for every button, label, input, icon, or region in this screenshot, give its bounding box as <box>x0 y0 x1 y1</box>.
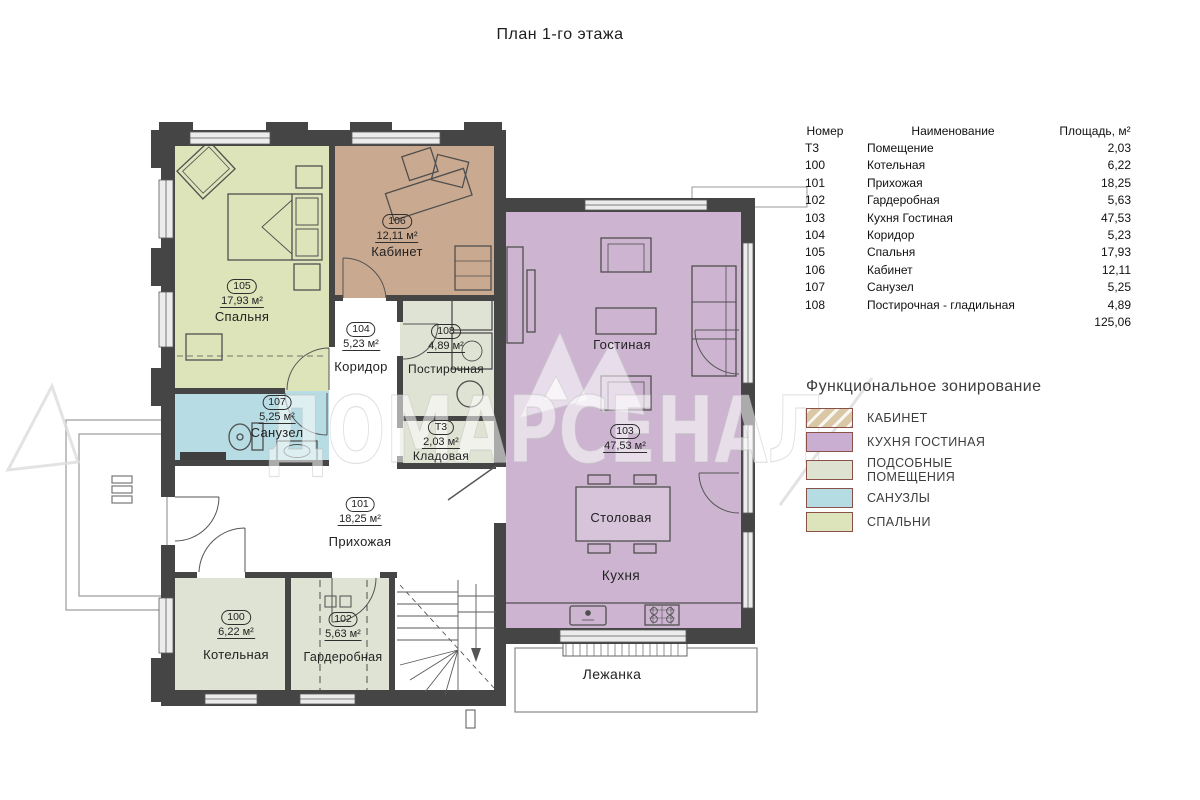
legend-item-kitchen-living: КУХНЯ ГОСТИНАЯ <box>806 432 1041 452</box>
label-laundry: 108 4,89 м² Постирочная <box>408 323 484 376</box>
legend-swatch-office <box>806 408 853 428</box>
table-row: 104Коридор5,23 <box>793 226 1141 243</box>
table-total-row: 125,06 <box>793 313 1141 330</box>
room-schedule-table: Номер Наименование Площадь, м² Т3Помещен… <box>793 122 1141 331</box>
table-row: 108Постирочная - гладильная4,89 <box>793 296 1141 313</box>
label-hallway: 101 18,25 м² Прихожая <box>329 496 392 549</box>
table-row: 103Кухня Гостиная47,53 <box>793 209 1141 226</box>
table-row: 100Котельная6,22 <box>793 157 1141 174</box>
legend-title: Функциональное зонирование <box>806 378 1041 396</box>
legend-swatch-bedrooms <box>806 512 853 532</box>
label-living: Гостиная <box>593 337 651 352</box>
legend-item-utility: ПОДСОБНЫЕ ПОМЕЩЕНИЯ <box>806 456 1041 484</box>
label-kitchen-living-num: 103 47,53 м² <box>603 423 647 453</box>
table-row: 107Санузел5,25 <box>793 279 1141 296</box>
label-wardrobe: 102 5,63 м² Гардеробная <box>304 611 383 664</box>
table-row: 101Прихожая18,25 <box>793 174 1141 191</box>
legend-item-office: КАБИНЕТ <box>806 408 1041 428</box>
label-kitchen: Кухня <box>602 568 640 583</box>
zoning-legend: Функциональное зонирование КАБИНЕТ КУХНЯ… <box>806 378 1041 536</box>
table-row: 106Кабинет12,11 <box>793 261 1141 278</box>
label-corridor: 104 5,23 м² Коридор <box>334 321 387 374</box>
table-row: Т3Помещение2,03 <box>793 139 1141 156</box>
label-boiler: 100 6,22 м² Котельная <box>203 609 269 662</box>
legend-item-bedrooms: СПАЛЬНИ <box>806 512 1041 532</box>
table-total-area: 125,06 <box>1049 315 1141 329</box>
table-header: Номер Наименование Площадь, м² <box>793 122 1141 139</box>
label-deck: Лежанка <box>583 666 642 682</box>
label-dining: Столовая <box>590 510 651 525</box>
label-office: 106 12,11 м² Кабинет <box>371 213 423 259</box>
table-row: 102Гардеробная5,63 <box>793 192 1141 209</box>
watermark-text: ДОМАРСЕНАЛ <box>265 377 825 484</box>
room-bedroom <box>175 144 329 391</box>
table-row: 105Спальня17,93 <box>793 244 1141 261</box>
legend-item-bathrooms: САНУЗЛЫ <box>806 488 1041 508</box>
floor-plan-sheet: План 1-го этажа <box>0 0 1200 800</box>
label-storage: Т3 2,03 м² Кладовая <box>413 419 469 463</box>
label-bedroom: 105 17,93 м² Спальня <box>215 278 269 324</box>
legend-swatch-kitchen-living <box>806 432 853 452</box>
label-bathroom: 107 5,25 м² Санузел <box>251 394 304 440</box>
legend-swatch-utility <box>806 460 853 480</box>
legend-swatch-bathrooms <box>806 488 853 508</box>
